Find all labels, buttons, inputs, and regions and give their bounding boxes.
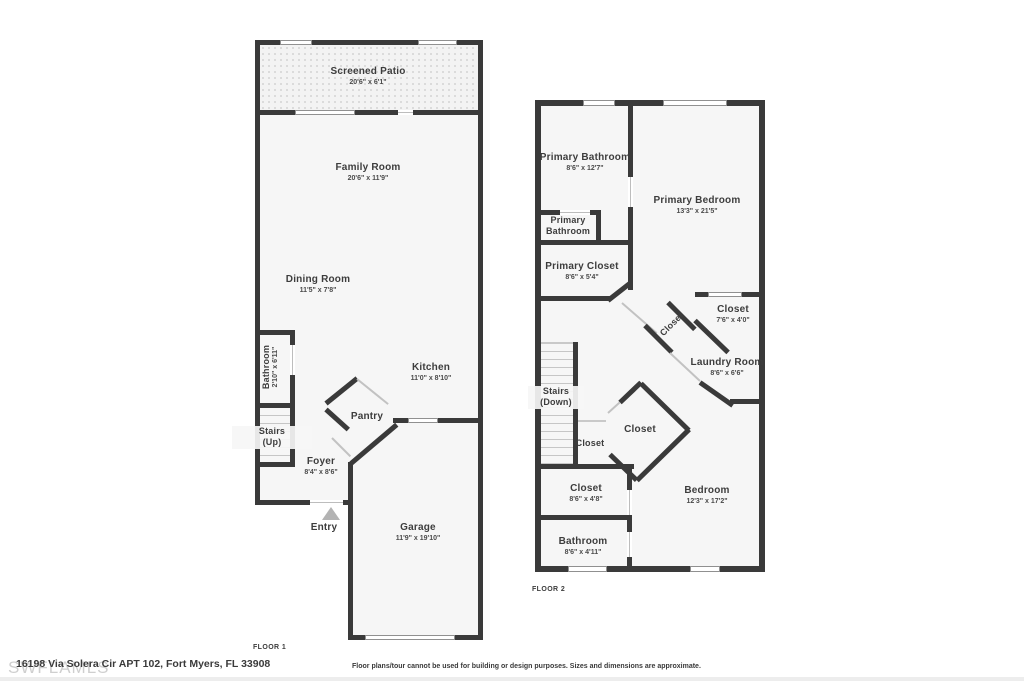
window	[583, 100, 615, 106]
window	[690, 566, 720, 572]
window	[295, 110, 355, 115]
room-label-closet-left: Closet	[565, 438, 615, 449]
room-label-primary-closet: Primary Closet 8'6" x 5'4"	[535, 261, 629, 282]
room-label-closet-center: Closet	[610, 424, 670, 437]
room-label-laundry-room: Laundry Room 8'6" x 6'6"	[672, 357, 782, 378]
wall-segment	[290, 330, 295, 345]
room-label-stairs-down: Stairs (Down)	[528, 386, 584, 409]
room-label-closet-bottom: Closet 8'6" x 4'8"	[541, 483, 631, 504]
property-address: 16198 Via Solera Cir APT 102, Fort Myers…	[16, 658, 270, 670]
room-label-bathroom-f2: Bathroom 8'6" x 4'11"	[538, 536, 628, 557]
window	[568, 566, 607, 572]
floor-plan-page: { "page": { "watermark": "SWFLAMLS", "ad…	[0, 0, 1024, 681]
wall-segment	[478, 40, 483, 640]
disclaimer-text: Floor plans/tour cannot be used for buil…	[352, 663, 701, 670]
room-label-stairs-up: Stairs (Up)	[232, 426, 312, 449]
door-opening	[290, 345, 295, 375]
room-label-closet-right: Closet 7'6" x 4'0"	[693, 304, 773, 325]
room-label-primary-bathroom: Primary Bathroom 8'6" x 12'7"	[535, 152, 635, 173]
door-opening	[628, 177, 633, 207]
room-label-entry: Entry	[294, 522, 354, 535]
wall-segment	[730, 399, 765, 404]
room-label-primary-bathroom-small: Primary Bathroom	[535, 215, 601, 238]
floor1-plan: Screened Patio 20'6" x 6'1" Family Room …	[255, 40, 483, 640]
room-label-pantry: Pantry	[327, 411, 407, 424]
room-label-bedroom: Bedroom 12'3" x 17'2"	[652, 485, 762, 506]
room-label-kitchen: Kitchen 11'0" x 8'10"	[371, 362, 491, 383]
wall-segment	[535, 464, 634, 469]
entry-door-opening	[310, 500, 343, 505]
wall-segment	[535, 296, 610, 301]
wall-segment	[535, 240, 633, 245]
wall-segment	[255, 110, 483, 115]
wall-segment	[255, 500, 310, 505]
floor1-label: FLOOR 1	[253, 644, 286, 651]
floor2-label: FLOOR 2	[532, 586, 565, 593]
room-label-bathroom-f1: Bathroom 2'10" x 6'11"	[261, 327, 287, 407]
room-label-foyer: Foyer 8'4" x 8'6"	[271, 456, 371, 477]
window	[408, 418, 438, 423]
wall-segment	[535, 100, 765, 106]
room-label-screened-patio: Screened Patio 20'6" x 6'1"	[288, 66, 448, 87]
window	[280, 40, 312, 45]
floor2-plan: Primary Bathroom 8'6" x 12'7" Primary Ba…	[535, 100, 765, 572]
wall-segment	[348, 462, 353, 640]
window	[708, 292, 742, 297]
entry-arrow-icon	[322, 507, 340, 520]
wall-segment	[627, 557, 632, 572]
door-swing-line	[578, 420, 606, 422]
door-opening	[398, 110, 413, 115]
room-label-primary-bedroom: Primary Bedroom 13'3" x 21'5"	[637, 195, 757, 216]
room-label-garage: Garage 11'9" x 19'10"	[358, 522, 478, 543]
window	[663, 100, 727, 106]
wall-segment	[535, 515, 632, 520]
bottom-edge-strip	[0, 677, 1024, 681]
room-label-dining-room: Dining Room 11'5" x 7'8"	[258, 274, 378, 295]
window	[418, 40, 457, 45]
room-label-family-room: Family Room 20'6" x 11'9"	[288, 162, 448, 183]
garage-door-opening	[365, 635, 455, 640]
